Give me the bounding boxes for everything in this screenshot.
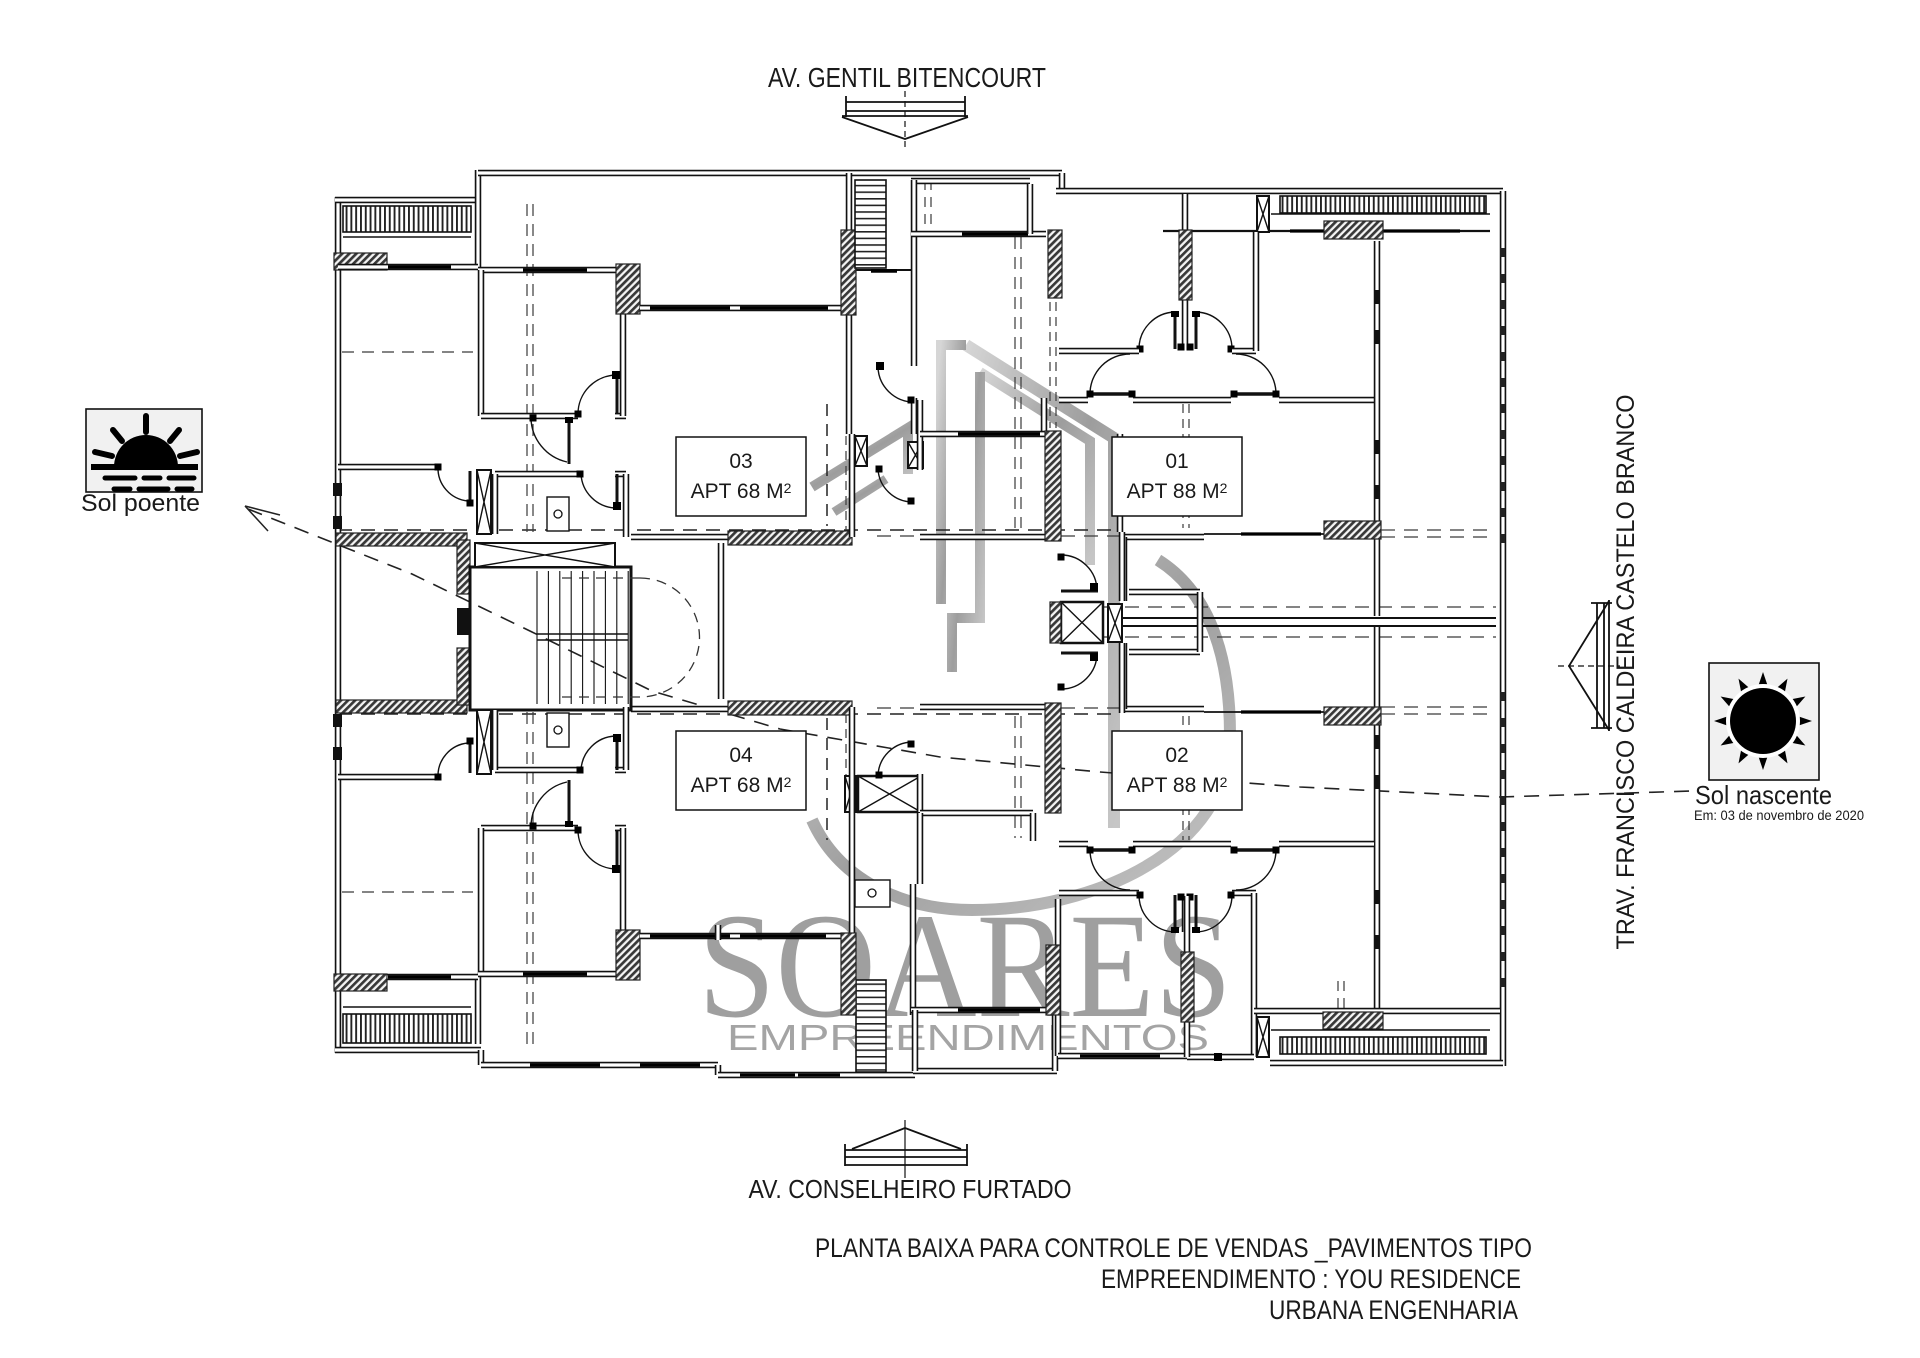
svg-text:EMPREENDIMENTOS: EMPREENDIMENTOS bbox=[727, 1017, 1209, 1058]
svg-text:EMPREENDIMENTO : YOU RESIDENCE: EMPREENDIMENTO : YOU RESIDENCE bbox=[1101, 1264, 1521, 1294]
svg-text:AV. CONSELHEIRO FURTADO: AV. CONSELHEIRO FURTADO bbox=[749, 1174, 1072, 1204]
svg-text:01: 01 bbox=[1165, 450, 1188, 473]
svg-text:APT 68 M2: APT 68 M2 bbox=[691, 774, 792, 797]
svg-text:04: 04 bbox=[729, 744, 753, 767]
svg-text:Sol nascente: Sol nascente bbox=[1695, 780, 1832, 810]
svg-text:AV. GENTIL BITENCOURT: AV. GENTIL BITENCOURT bbox=[768, 62, 1046, 93]
svg-text:URBANA ENGENHARIA: URBANA ENGENHARIA bbox=[1269, 1295, 1518, 1325]
svg-text:Sol poente: Sol poente bbox=[81, 490, 200, 517]
svg-text:APT 68 M2: APT 68 M2 bbox=[691, 480, 792, 503]
svg-text:02: 02 bbox=[1165, 744, 1188, 767]
svg-text:Em: 03 de novembro de 2020: Em: 03 de novembro de 2020 bbox=[1694, 808, 1864, 823]
svg-text:TRAV. FRANCISCO CALDEIRA CASTE: TRAV. FRANCISCO CALDEIRA CASTELO BRANCO bbox=[1612, 395, 1640, 950]
svg-text:03: 03 bbox=[729, 450, 752, 473]
svg-text:APT 88 M2: APT 88 M2 bbox=[1127, 774, 1228, 797]
svg-text:PLANTA BAIXA PARA CONTROLE DE: PLANTA BAIXA PARA CONTROLE DE VENDAS _PA… bbox=[815, 1233, 1532, 1263]
svg-text:APT 88 M2: APT 88 M2 bbox=[1127, 480, 1228, 503]
